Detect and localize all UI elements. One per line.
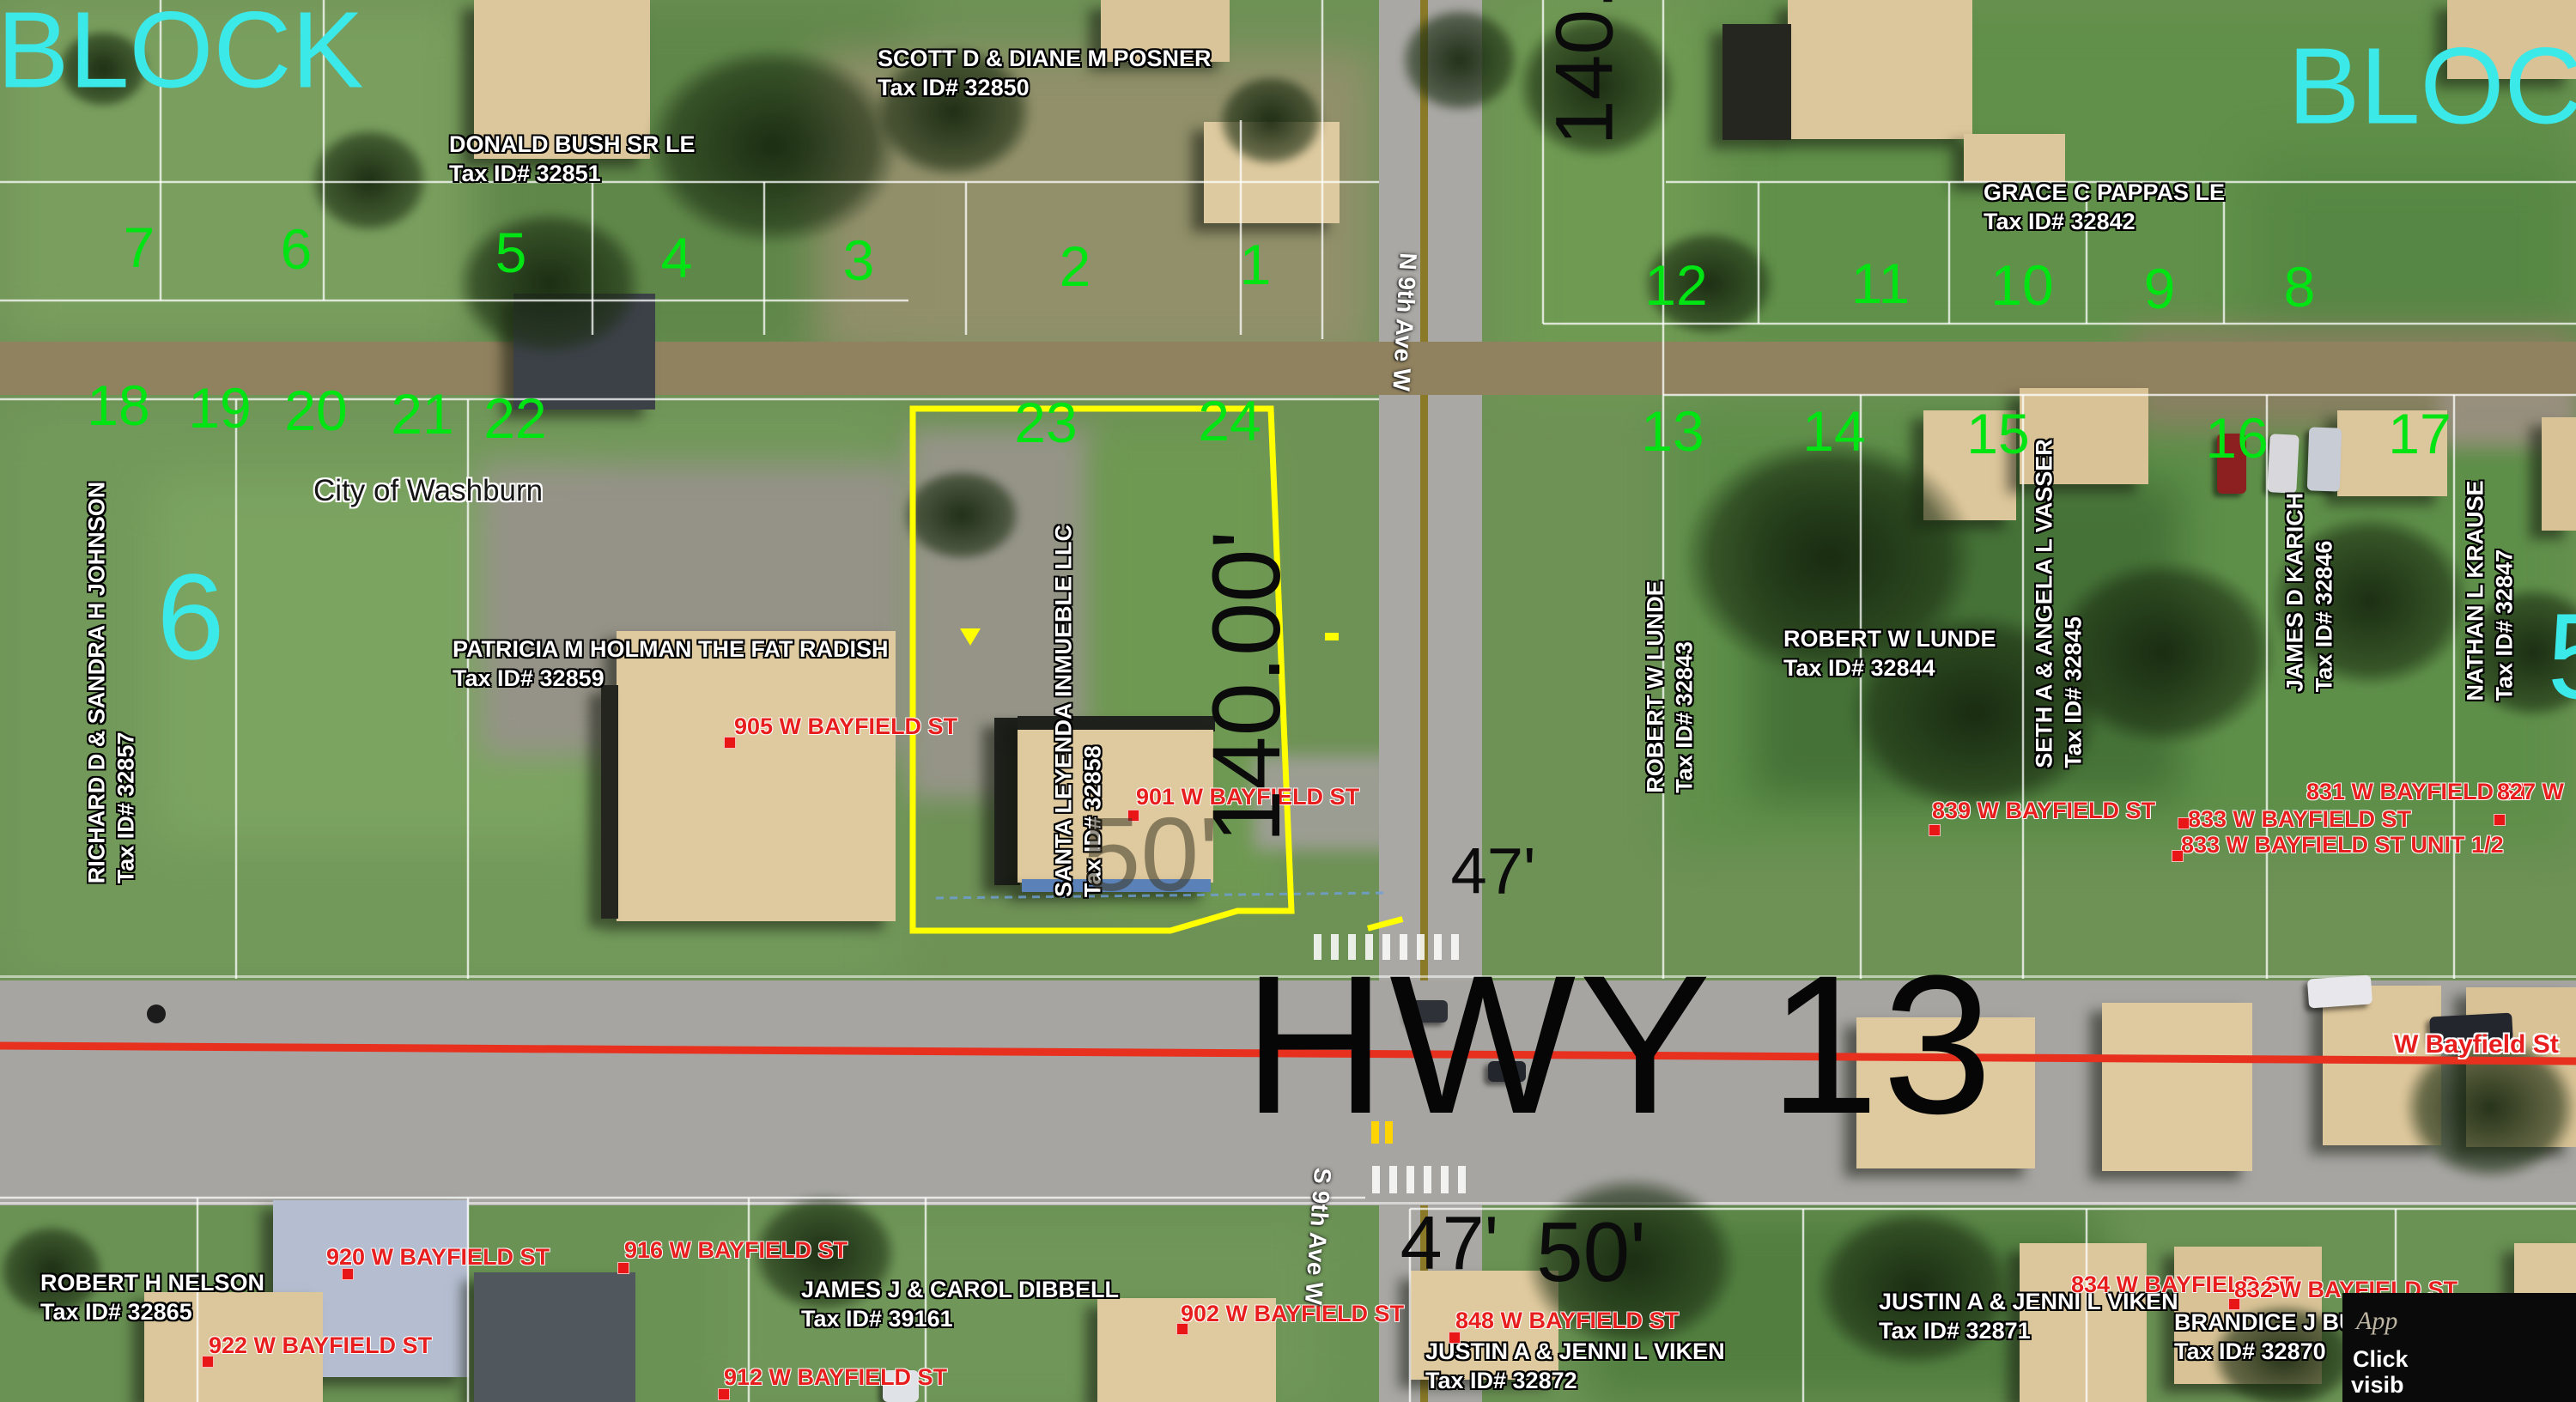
lot-number: 12 <box>1644 250 1707 321</box>
map-label-layer: BLOCKBLOCK657654321181920212223241211109… <box>0 0 2576 1402</box>
owner-name: JAMES J & CAROL DIBBELL <box>801 1276 1119 1305</box>
owner-name: SETH A & ANGELA L VASSER <box>2030 439 2059 768</box>
owner-tax-id: Tax ID# 32846 <box>2310 493 2339 693</box>
lot-number: 21 <box>391 379 453 450</box>
street-label-w-bayfield: W Bayfield St <box>2394 1029 2559 1061</box>
measurement-label: 47' <box>1450 831 1535 913</box>
owner-label: PATRICIA M HOLMAN THE FAT RADISHTax ID# … <box>453 635 888 694</box>
address-label: 848 W BAYFIELD ST <box>1455 1307 1679 1336</box>
address-marker-dot <box>1929 824 1941 836</box>
address-label: 912 W BAYFIELD ST <box>724 1363 947 1393</box>
owner-label: SCOTT D & DIANE M POSNERTax ID# 32850 <box>878 45 1212 103</box>
measurement-label: 50' <box>1083 789 1219 920</box>
lot-number: 6 <box>281 214 313 285</box>
address-marker-dot <box>342 1268 354 1280</box>
owner-tax-id: Tax ID# 32872 <box>1425 1367 1725 1396</box>
address-label: 905 W BAYFIELD ST <box>734 713 957 742</box>
address-label: 916 W BAYFIELD ST <box>624 1236 848 1265</box>
owner-name: DONALD BUSH SR LE <box>449 130 696 160</box>
highway-label: HWY 13 <box>1243 946 1996 1144</box>
block-label: BLOCK <box>2287 18 2576 154</box>
owner-name: ROBERT W LUNDE <box>1641 580 1670 792</box>
lot-number: 23 <box>1014 387 1077 458</box>
owner-tax-id: Tax ID# 32845 <box>2059 439 2088 768</box>
address-label: 920 W BAYFIELD ST <box>326 1243 550 1272</box>
owner-label: SETH A & ANGELA L VASSERTax ID# 32845 <box>2030 439 2088 768</box>
owner-name: SCOTT D & DIANE M POSNER <box>878 45 1212 74</box>
address-label: 839 W BAYFIELD ST <box>1932 797 2155 826</box>
lot-number: 2 <box>1060 231 1091 302</box>
owner-tax-id: Tax ID# 32842 <box>1984 208 2225 237</box>
block-label: 5 <box>2548 580 2576 733</box>
lot-number: 4 <box>661 222 693 294</box>
address-marker-dot <box>718 1388 730 1400</box>
owner-tax-id: Tax ID# 32850 <box>878 74 1212 103</box>
owner-name: ROBERT W LUNDE <box>1783 625 1996 654</box>
street-label: N 9th Ave W <box>1386 252 1423 392</box>
address-label: 902 W BAYFIELD ST <box>1181 1300 1404 1329</box>
lot-number: 3 <box>843 225 875 296</box>
owner-label: RICHARD D & SANDRA H JOHNSONTax ID# 3285… <box>82 482 141 884</box>
address-marker-dot <box>2494 814 2506 826</box>
address-marker-dot <box>617 1262 629 1274</box>
block-label: BLOCK <box>0 0 364 118</box>
address-marker-dot <box>1176 1323 1188 1335</box>
owner-label: ROBERT H NELSONTax ID# 32865 <box>40 1269 264 1327</box>
address-marker-dot <box>2172 850 2184 862</box>
owner-tax-id: Tax ID# 32865 <box>40 1298 264 1327</box>
owner-label: JAMES J & CAROL DIBBELLTax ID# 39161 <box>801 1276 1119 1334</box>
lot-number: 11 <box>1851 248 1911 319</box>
attribution-panel[interactable]: App Click visib <box>2342 1293 2576 1402</box>
lot-number: 22 <box>483 383 546 454</box>
lot-number: 18 <box>87 370 149 441</box>
attribution-line-1: App <box>2356 1307 2397 1336</box>
owner-name: PATRICIA M HOLMAN THE FAT RADISH <box>453 635 888 665</box>
owner-tax-id: Tax ID# 32859 <box>453 665 888 694</box>
owner-name: NATHAN L KRAUSE <box>2461 480 2490 701</box>
owner-tax-id: Tax ID# 39161 <box>801 1305 1119 1334</box>
gis-map-viewport[interactable]: BLOCKBLOCK657654321181920212223241211109… <box>0 0 2576 1402</box>
owner-name: GRACE C PAPPAS LE <box>1984 179 2225 208</box>
attribution-line-2[interactable]: Click <box>2353 1346 2409 1373</box>
address-marker-dot <box>2178 817 2190 829</box>
address-marker-dot <box>1449 1332 1461 1344</box>
address-label: 833 W BAYFIELD ST <box>2188 805 2411 835</box>
owner-label: ROBERT W LUNDETax ID# 32844 <box>1783 625 1996 683</box>
lot-number: 7 <box>124 212 155 283</box>
lot-number: 15 <box>1966 398 2029 470</box>
owner-label: NATHAN L KRAUSETax ID# 32847 <box>2461 480 2519 701</box>
lot-number: 16 <box>2205 403 2268 474</box>
owner-tax-id: Tax ID# 32844 <box>1783 654 1996 683</box>
owner-tax-id: Tax ID# 32857 <box>112 482 141 884</box>
lot-number: 9 <box>2144 253 2176 325</box>
address-label: 922 W BAYFIELD ST <box>209 1332 432 1361</box>
lot-number: 14 <box>1802 396 1865 467</box>
owner-label: ROBERT W LUNDETax ID# 32843 <box>1641 580 1699 792</box>
owner-label: GRACE C PAPPAS LETax ID# 32842 <box>1984 179 2225 237</box>
owner-label: JAMES D KARICHTax ID# 32846 <box>2281 493 2339 693</box>
owner-name: SANTA LEYENDA INMUEBLE LLC <box>1049 525 1078 897</box>
owner-label: JUSTIN A & JENNI L VIKENTax ID# 32872 <box>1425 1338 1725 1396</box>
lot-number: 5 <box>495 217 527 288</box>
lot-number: 24 <box>1198 385 1261 457</box>
lot-number: 10 <box>1990 250 2053 321</box>
address-label: 827 W <box>2497 778 2564 807</box>
lot-number: 13 <box>1641 396 1704 467</box>
owner-label: DONALD BUSH SR LETax ID# 32851 <box>449 130 696 189</box>
measurement-label: 50' <box>1536 1199 1646 1305</box>
lot-number: 8 <box>2284 252 2316 323</box>
street-label: S 9th Ave W <box>1298 1167 1338 1306</box>
address-marker-dot <box>724 737 736 749</box>
attribution-line-3: visib <box>2351 1372 2404 1399</box>
lot-number: 1 <box>1240 229 1272 300</box>
lot-number: 17 <box>2388 398 2451 470</box>
measurement-label: 140.00' <box>1534 0 1637 145</box>
owner-name: ROBERT H NELSON <box>40 1269 264 1298</box>
address-marker-dot <box>2228 1298 2240 1310</box>
address-marker-dot <box>202 1356 214 1368</box>
block-label: 6 <box>157 541 225 694</box>
owner-name: RICHARD D & SANDRA H JOHNSON <box>82 482 112 884</box>
owner-tax-id: Tax ID# 32847 <box>2490 480 2519 701</box>
measurement-label: 47' <box>1400 1196 1499 1290</box>
owner-name: JUSTIN A & JENNI L VIKEN <box>1425 1338 1725 1367</box>
parcel-vertex-marker <box>960 628 981 646</box>
owner-tax-id: Tax ID# 32851 <box>449 160 696 189</box>
lot-number: 20 <box>284 375 347 446</box>
city-label: City of Washburn <box>313 472 543 510</box>
owner-tax-id: Tax ID# 32871 <box>1879 1317 2178 1346</box>
owner-tax-id: Tax ID# 32843 <box>1670 580 1699 792</box>
owner-name: JAMES D KARICH <box>2281 493 2310 693</box>
lot-number: 19 <box>188 373 251 444</box>
address-label: 833 W BAYFIELD ST UNIT 1/2 <box>2181 831 2504 860</box>
